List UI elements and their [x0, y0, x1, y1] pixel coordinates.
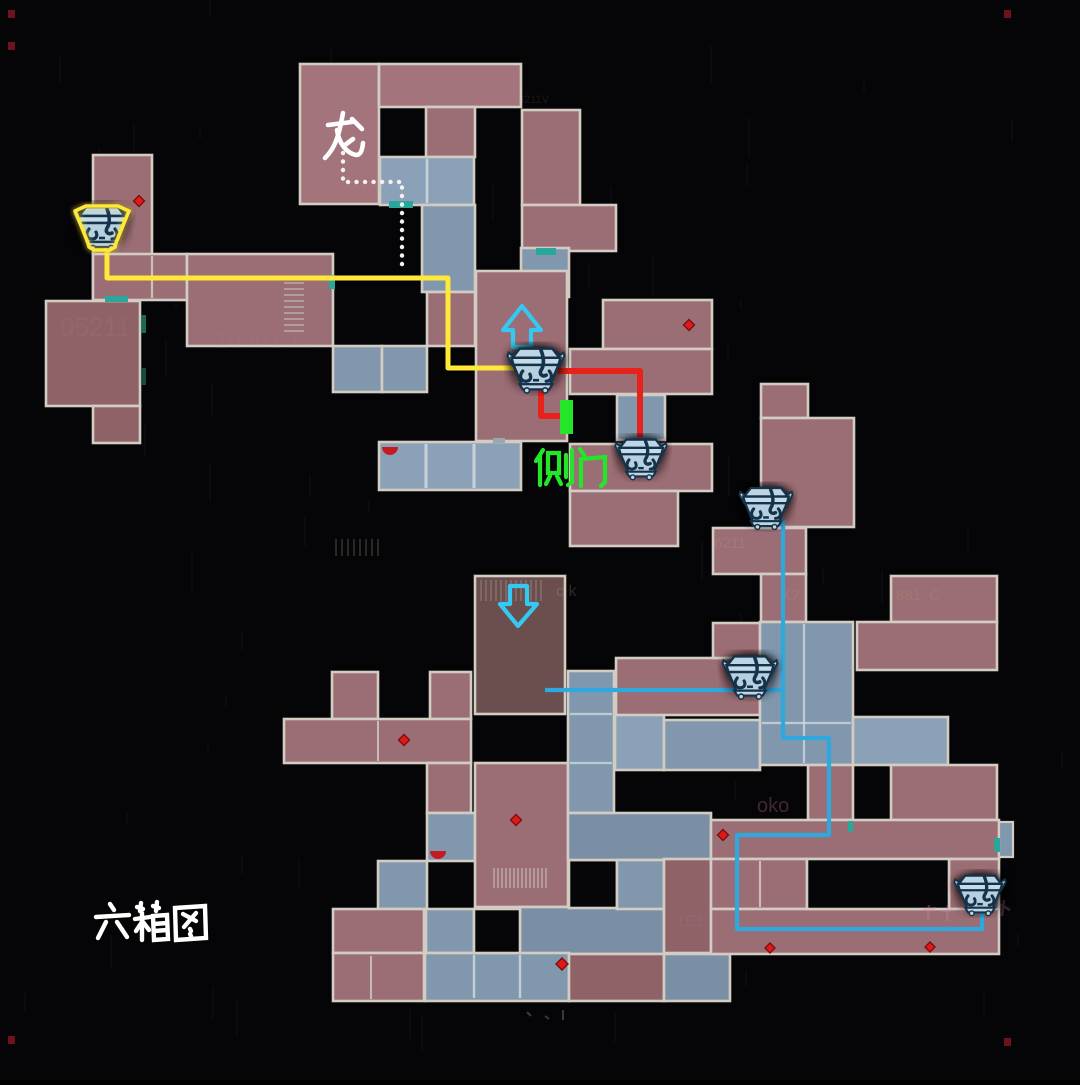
svg-text:10801 18: 10801 18: [215, 327, 315, 354]
svg-text:6211: 6211: [714, 535, 746, 552]
svg-text:6211V: 6211V: [518, 94, 550, 106]
svg-text:1E1: 1E1: [676, 913, 705, 930]
svg-text:881. C: 881. C: [896, 587, 940, 604]
svg-text:05211: 05211: [60, 312, 130, 342]
svg-text:oko: oko: [757, 795, 789, 817]
svg-text:c k: c k: [556, 583, 577, 600]
